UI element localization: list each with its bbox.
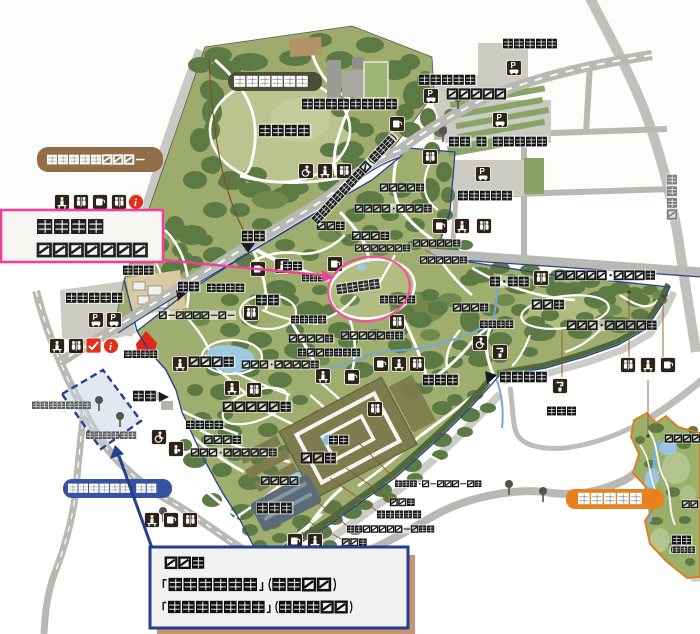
svg-text:P: P (93, 313, 99, 322)
svg-text:P: P (511, 61, 517, 70)
svg-text:P: P (480, 167, 486, 176)
svg-text:P: P (428, 89, 434, 98)
svg-text:P: P (111, 313, 117, 322)
svg-text:P: P (497, 113, 503, 122)
